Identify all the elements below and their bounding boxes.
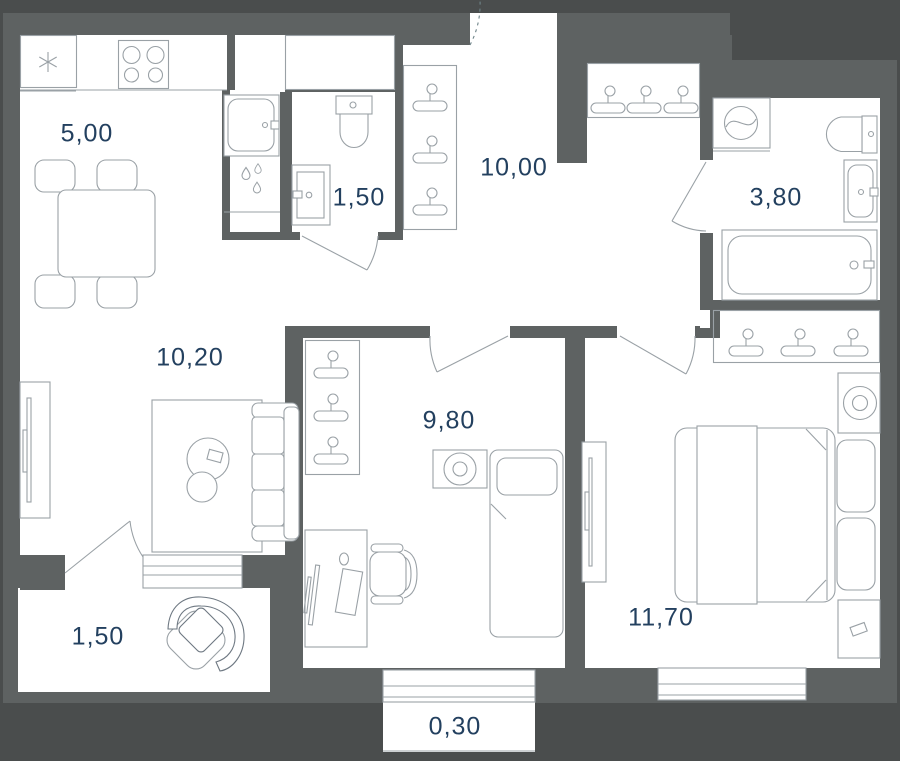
room-label-balcony: 0,30: [429, 713, 482, 742]
wall-segment: [227, 35, 235, 90]
wall-segment: [710, 35, 732, 98]
corridor-floor: [285, 235, 565, 326]
bedroom-window-sill: [658, 668, 806, 700]
wall-segment: [695, 328, 710, 338]
floor-plan: 5,00 1,50 10,00 3,80 10,20 9,80 11,70 1,…: [0, 0, 900, 761]
room-label-bedroom-second: 9,80: [423, 407, 476, 436]
wall-segment: [270, 588, 285, 703]
wall-segment: [585, 328, 617, 338]
wall-segment: [395, 13, 470, 45]
room-label-bathroom-large: 3,80: [750, 184, 803, 213]
wall-segment: [20, 555, 65, 590]
wall-segment: [700, 233, 713, 300]
wall-segment: [700, 98, 713, 160]
entry-wardrobe-floor: [587, 63, 700, 163]
wall-segment: [285, 326, 303, 703]
wall-segment: [242, 555, 285, 588]
room-label-bedroom-master: 11,70: [628, 604, 694, 633]
bathroom-small-door-gap: [300, 232, 378, 240]
wall-segment: [557, 20, 587, 163]
wall-segment: [222, 90, 230, 232]
kitchen-living-floor: [20, 35, 285, 555]
wall-segment: [700, 300, 880, 310]
room-label-living-room: 10,20: [156, 344, 224, 373]
room-label-loggia: 1,50: [72, 623, 125, 652]
wall-segment: [395, 35, 403, 235]
kitchen-cabinet-floor: [285, 35, 395, 90]
wall-segment: [222, 232, 300, 240]
bedroom-master-door-gap: [617, 326, 695, 338]
bathroom-large-door-gap: [700, 160, 713, 233]
wall-segment: [565, 338, 580, 668]
entry-corridor-floor: [560, 163, 720, 326]
wall-segment: [285, 326, 430, 338]
bedroom-second-door-gap: [430, 326, 510, 338]
room-label-hallway: 10,00: [480, 154, 548, 183]
room-label-kitchen: 5,00: [61, 120, 114, 149]
wall-segment: [280, 92, 292, 232]
bedroom-master-top-floor: [700, 310, 880, 338]
loggia-floor: [18, 588, 270, 692]
wall-segment: [510, 326, 585, 338]
room-label-bathroom-small: 1,50: [333, 184, 386, 213]
entrance-opening: [470, 13, 557, 45]
loggia-door-gap: [65, 555, 143, 588]
bedroom-second-floor: [303, 338, 565, 668]
living-window-sill: [143, 555, 242, 588]
